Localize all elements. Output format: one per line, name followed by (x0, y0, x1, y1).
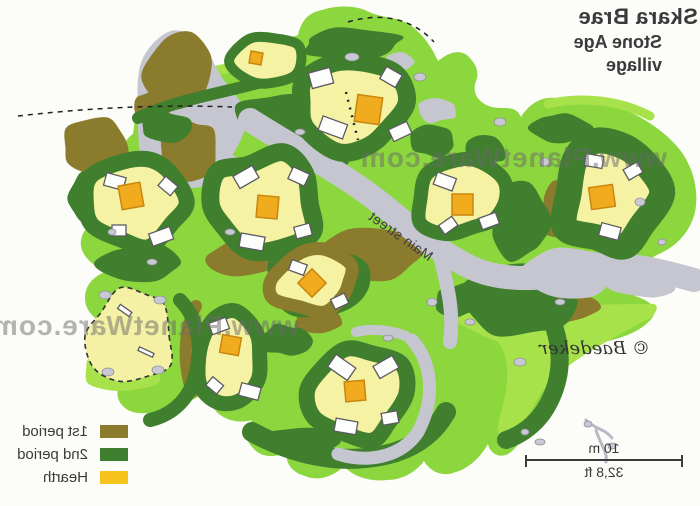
stone (494, 118, 506, 126)
scale-imperial-label: 32,8 ft (525, 464, 683, 480)
watermark-left: www.PlanetWare.com (0, 310, 299, 342)
stone (414, 73, 426, 81)
copyright-baedeker: © Baedeker (546, 338, 650, 359)
stone (108, 229, 116, 235)
legend-swatch-1st-period (100, 425, 128, 438)
house-floor-remnant (229, 37, 301, 84)
passage-spur (356, 330, 406, 336)
scale-bar-line (525, 459, 683, 461)
page-subtitle-line2: village (498, 55, 698, 76)
stone (658, 239, 666, 245)
stone (225, 229, 235, 235)
hearth-icon (344, 380, 366, 402)
hearth-icon (118, 182, 144, 209)
legend-row-1st-period: 1st period (0, 425, 230, 438)
scale-tick-right (525, 455, 527, 467)
page-title: Skara Brae (498, 4, 698, 30)
hearth-icon (589, 184, 616, 209)
stone (102, 368, 114, 376)
stone (295, 129, 305, 135)
stone (383, 335, 393, 341)
stone (154, 296, 166, 304)
legend-label-hearth: Hearth (43, 469, 88, 486)
stone (99, 291, 111, 299)
scale-metric-label: 10 m (525, 440, 683, 456)
stone (345, 53, 359, 61)
stone (152, 366, 164, 374)
legend-label-2nd-period: 2nd period (17, 446, 88, 463)
scale-tick-left (681, 455, 683, 467)
stone (427, 298, 437, 306)
watermark-top: www.PlanetWare.com (360, 142, 667, 174)
hearth-icon (249, 51, 263, 65)
title-block: Skara Brae Stone Age village (498, 4, 698, 76)
legend-row-2nd-period: 2nd period (0, 448, 230, 461)
stone (147, 259, 157, 265)
map-page: Skara Brae Stone Age village 1st period … (0, 0, 700, 506)
furniture-slab (381, 411, 399, 426)
page-subtitle-line1: Stone Age (498, 32, 698, 53)
legend-swatch-hearth (100, 471, 128, 484)
legend-label-1st-period: 1st period (22, 423, 88, 440)
legend-swatch-2nd-period (100, 448, 128, 461)
legend-row-hearth: Hearth (0, 471, 230, 484)
scale-bar: 10 m 32,8 ft (525, 440, 683, 480)
map-legend: 1st period 2nd period Hearth (0, 425, 230, 494)
hearth-icon (354, 94, 383, 124)
stone (514, 358, 526, 366)
hearth-icon (452, 194, 473, 215)
stone (635, 198, 645, 206)
stone (521, 429, 529, 435)
hearth-icon (256, 195, 279, 219)
stone (465, 319, 475, 325)
stone (584, 421, 592, 427)
stone (555, 299, 565, 305)
